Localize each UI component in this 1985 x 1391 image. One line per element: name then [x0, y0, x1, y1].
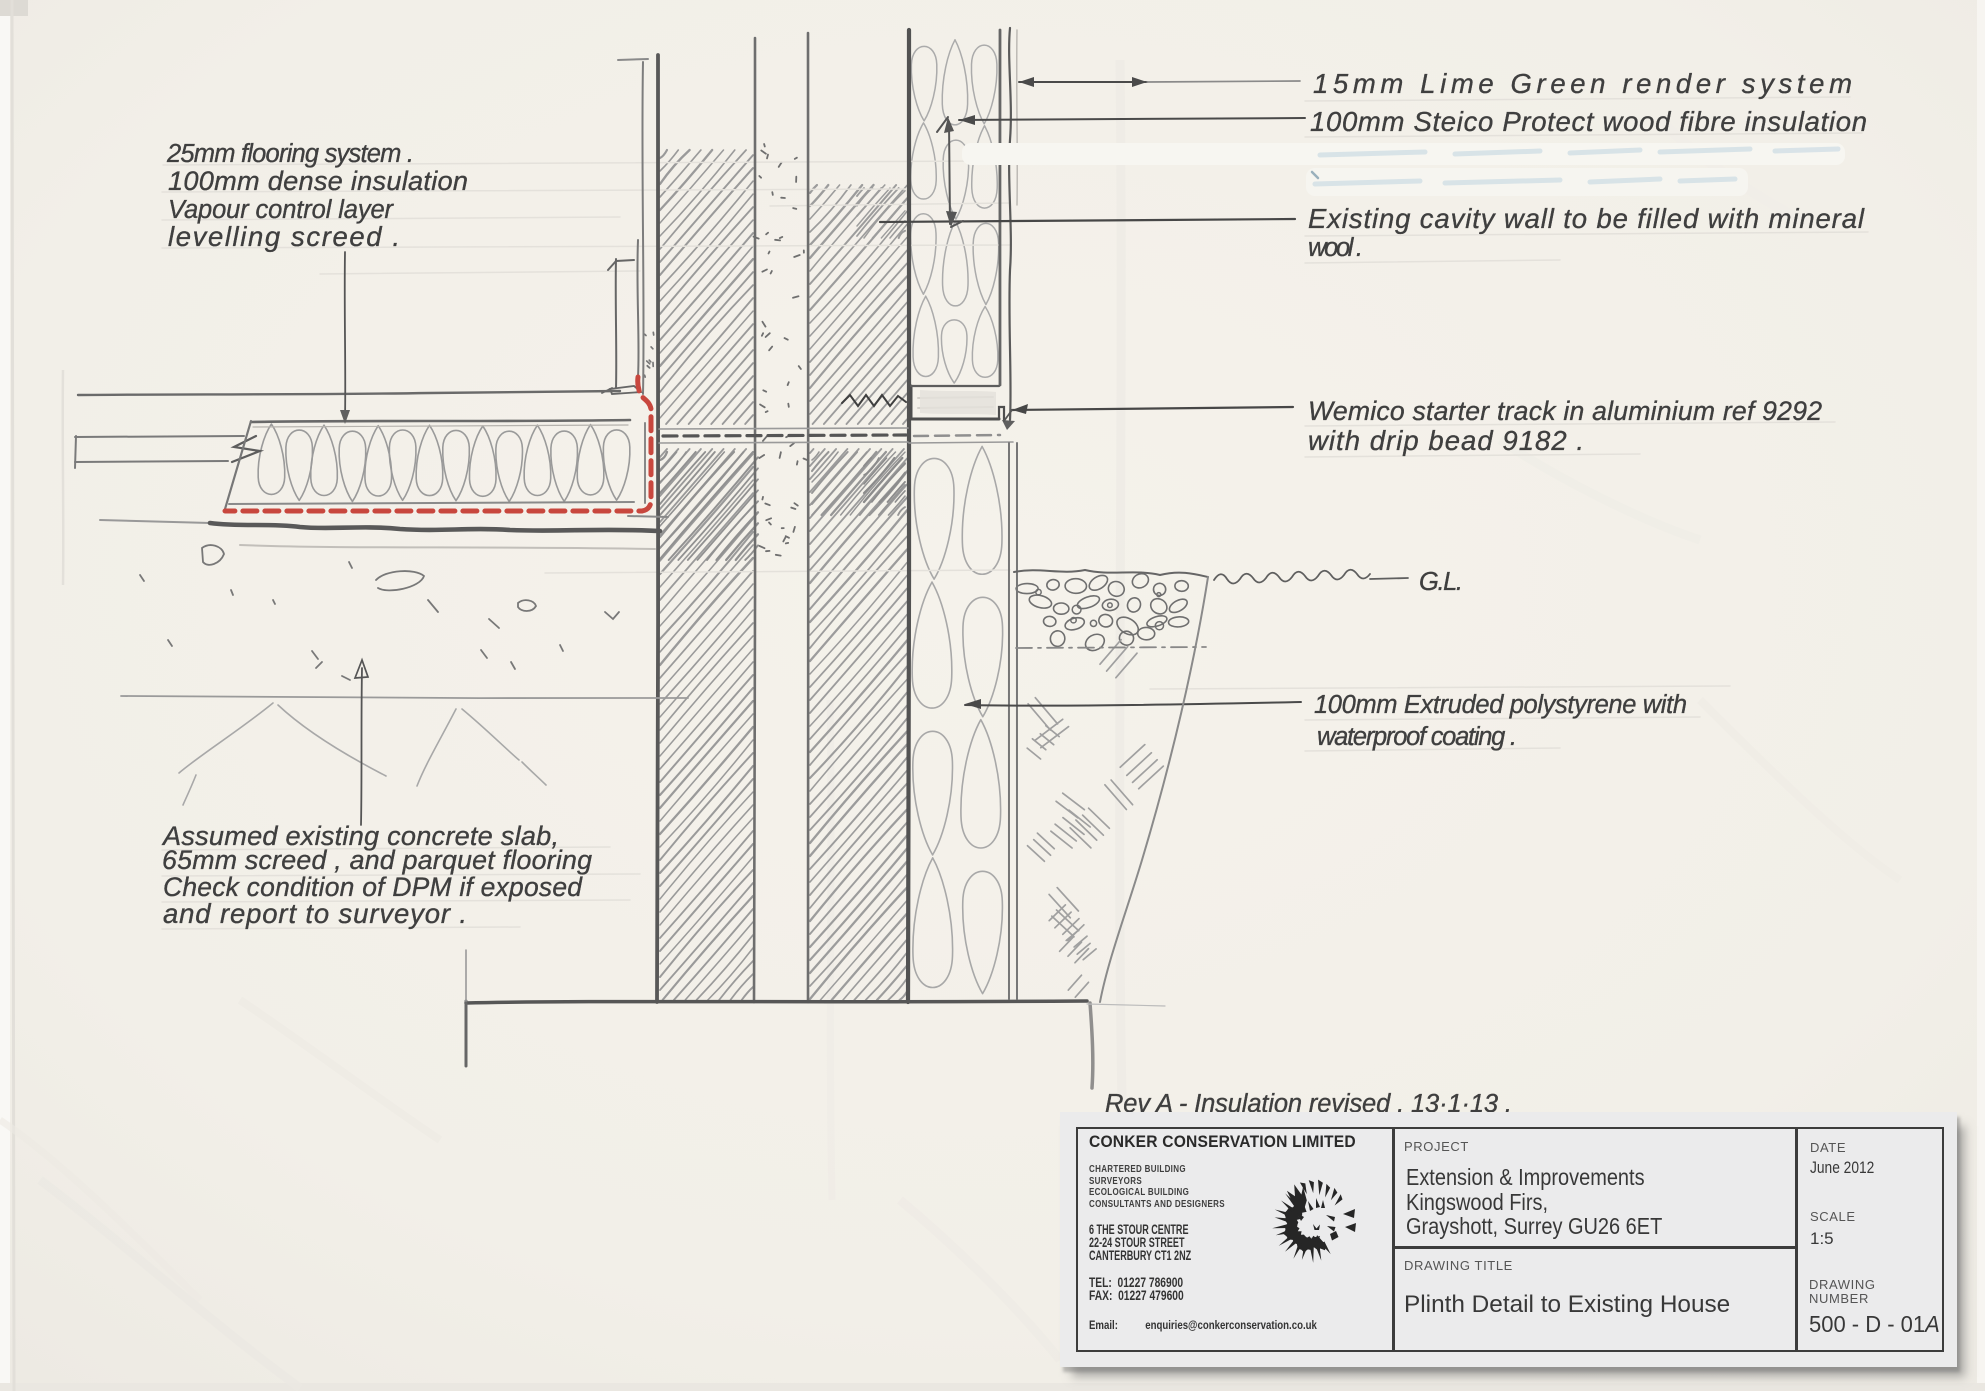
svg-text:Existing cavity wall to be fi: Existing cavity wall to be filled with m…	[1308, 203, 1865, 234]
svg-text:Vapour control layer: Vapour control layer	[168, 196, 395, 224]
svg-text:Wemico starter track in alumin: Wemico starter track in aluminium ref 92…	[1308, 396, 1822, 426]
svg-text:G.L.: G.L.	[1419, 568, 1463, 596]
svg-text:100mm Extruded polystyrene wit: 100mm Extruded polystyrene with	[1314, 691, 1687, 719]
svg-text:15mm Lime Green render syste: 15mm Lime Green render system	[1313, 68, 1852, 99]
svg-text:100mm dense insulation: 100mm dense insulation	[168, 165, 468, 196]
svg-text:100mm Steico Protect wood fi: 100mm Steico Protect wood fibre insulati…	[1310, 106, 1867, 137]
svg-text:with drip bead 9182 .: with drip bead 9182 .	[1308, 425, 1584, 456]
svg-text:wool .: wool .	[1308, 234, 1363, 262]
svg-text:waterproof coating .: waterproof coating .	[1317, 723, 1517, 751]
svg-text:65mm screed , and parquet flo: 65mm screed , and parquet flooring	[162, 845, 592, 875]
svg-text:25mm flooring system .: 25mm flooring system .	[166, 140, 414, 168]
svg-text:and report to surveyor .: and report to surveyor .	[163, 898, 467, 929]
